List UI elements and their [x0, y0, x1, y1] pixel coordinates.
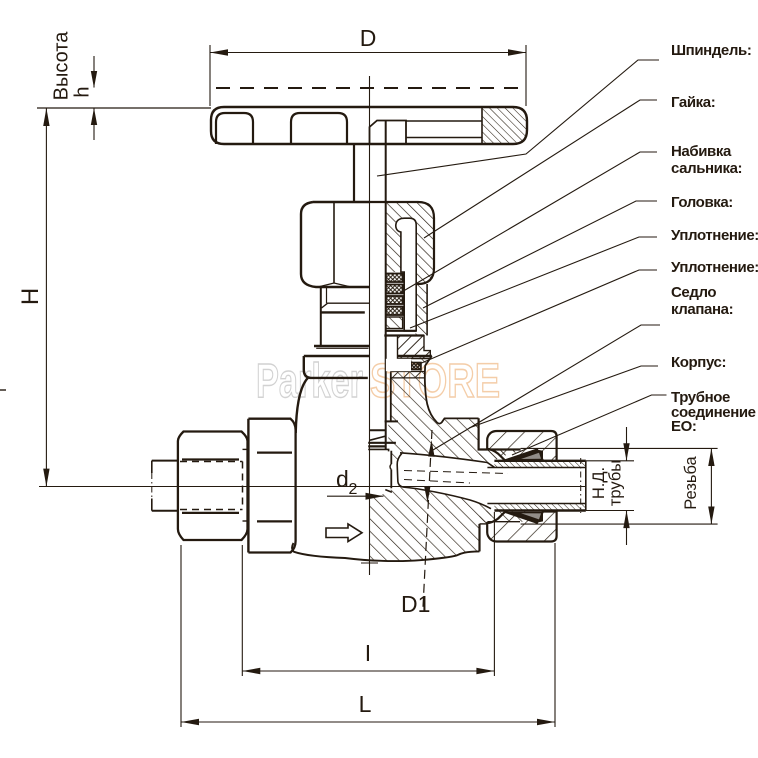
svg-text:h: h [71, 86, 93, 97]
svg-text:Parker: Parker [256, 355, 363, 408]
svg-text:Шпиндель:: Шпиндель: [671, 42, 751, 59]
svg-text:Уплотнение:: Уплотнение: [671, 259, 758, 276]
svg-text:Корпус:: Корпус: [671, 354, 726, 371]
svg-text:Резьба: Резьба [682, 455, 700, 509]
svg-text:H: H [17, 288, 44, 305]
svg-text:Уплотнение:: Уплотнение: [671, 227, 758, 244]
svg-text:сальника:: сальника: [671, 160, 742, 177]
svg-text:Гайка:: Гайка: [671, 94, 715, 111]
svg-text:Набивка: Набивка [671, 143, 732, 160]
svg-text:d: d [336, 466, 349, 492]
svg-text:Н.Д.: Н.Д. [590, 467, 608, 499]
svg-text:Высота: Высота [50, 31, 72, 101]
svg-text:ЕО:: ЕО: [671, 418, 696, 435]
svg-text:D1: D1 [401, 591, 430, 617]
svg-text:D: D [360, 25, 377, 51]
svg-text:Головка:: Головка: [671, 194, 733, 211]
svg-text:клапана:: клапана: [671, 301, 733, 318]
svg-text:L: L [359, 691, 372, 717]
svg-text:2: 2 [349, 481, 358, 498]
svg-text:трубы: трубы [606, 460, 624, 506]
svg-text:I: I [365, 640, 371, 666]
svg-text:Седло: Седло [671, 284, 716, 301]
